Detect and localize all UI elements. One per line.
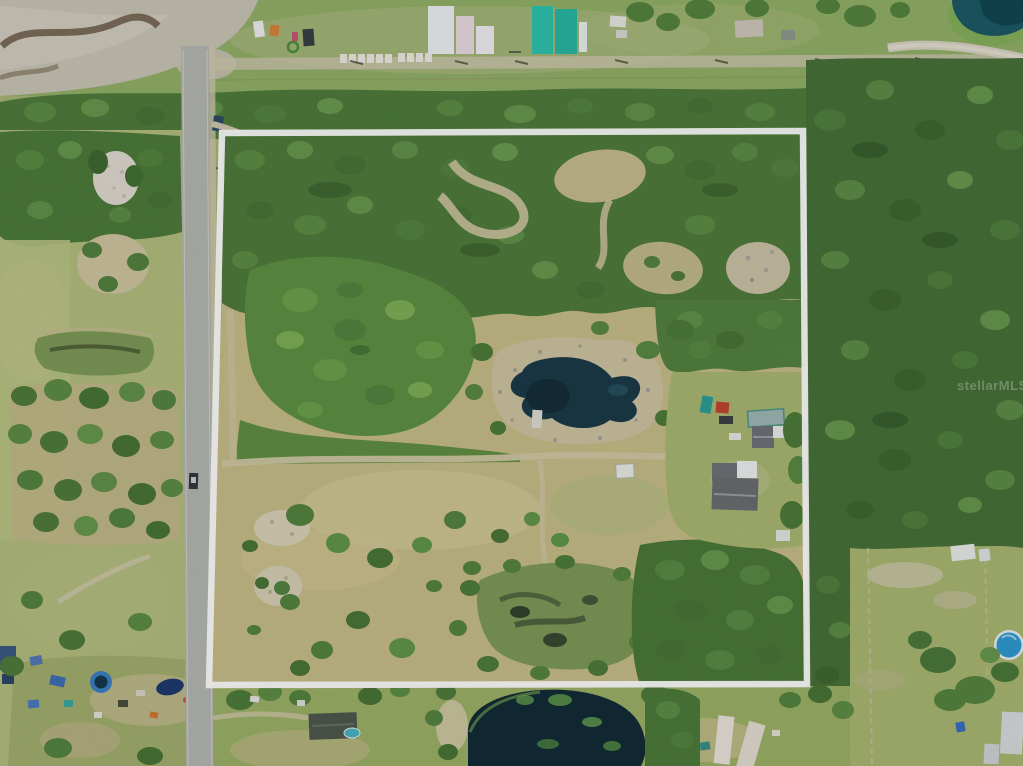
- photo-grain-overlay: [0, 0, 1023, 766]
- aerial-listing-photo: stellarMLS: [0, 0, 1023, 766]
